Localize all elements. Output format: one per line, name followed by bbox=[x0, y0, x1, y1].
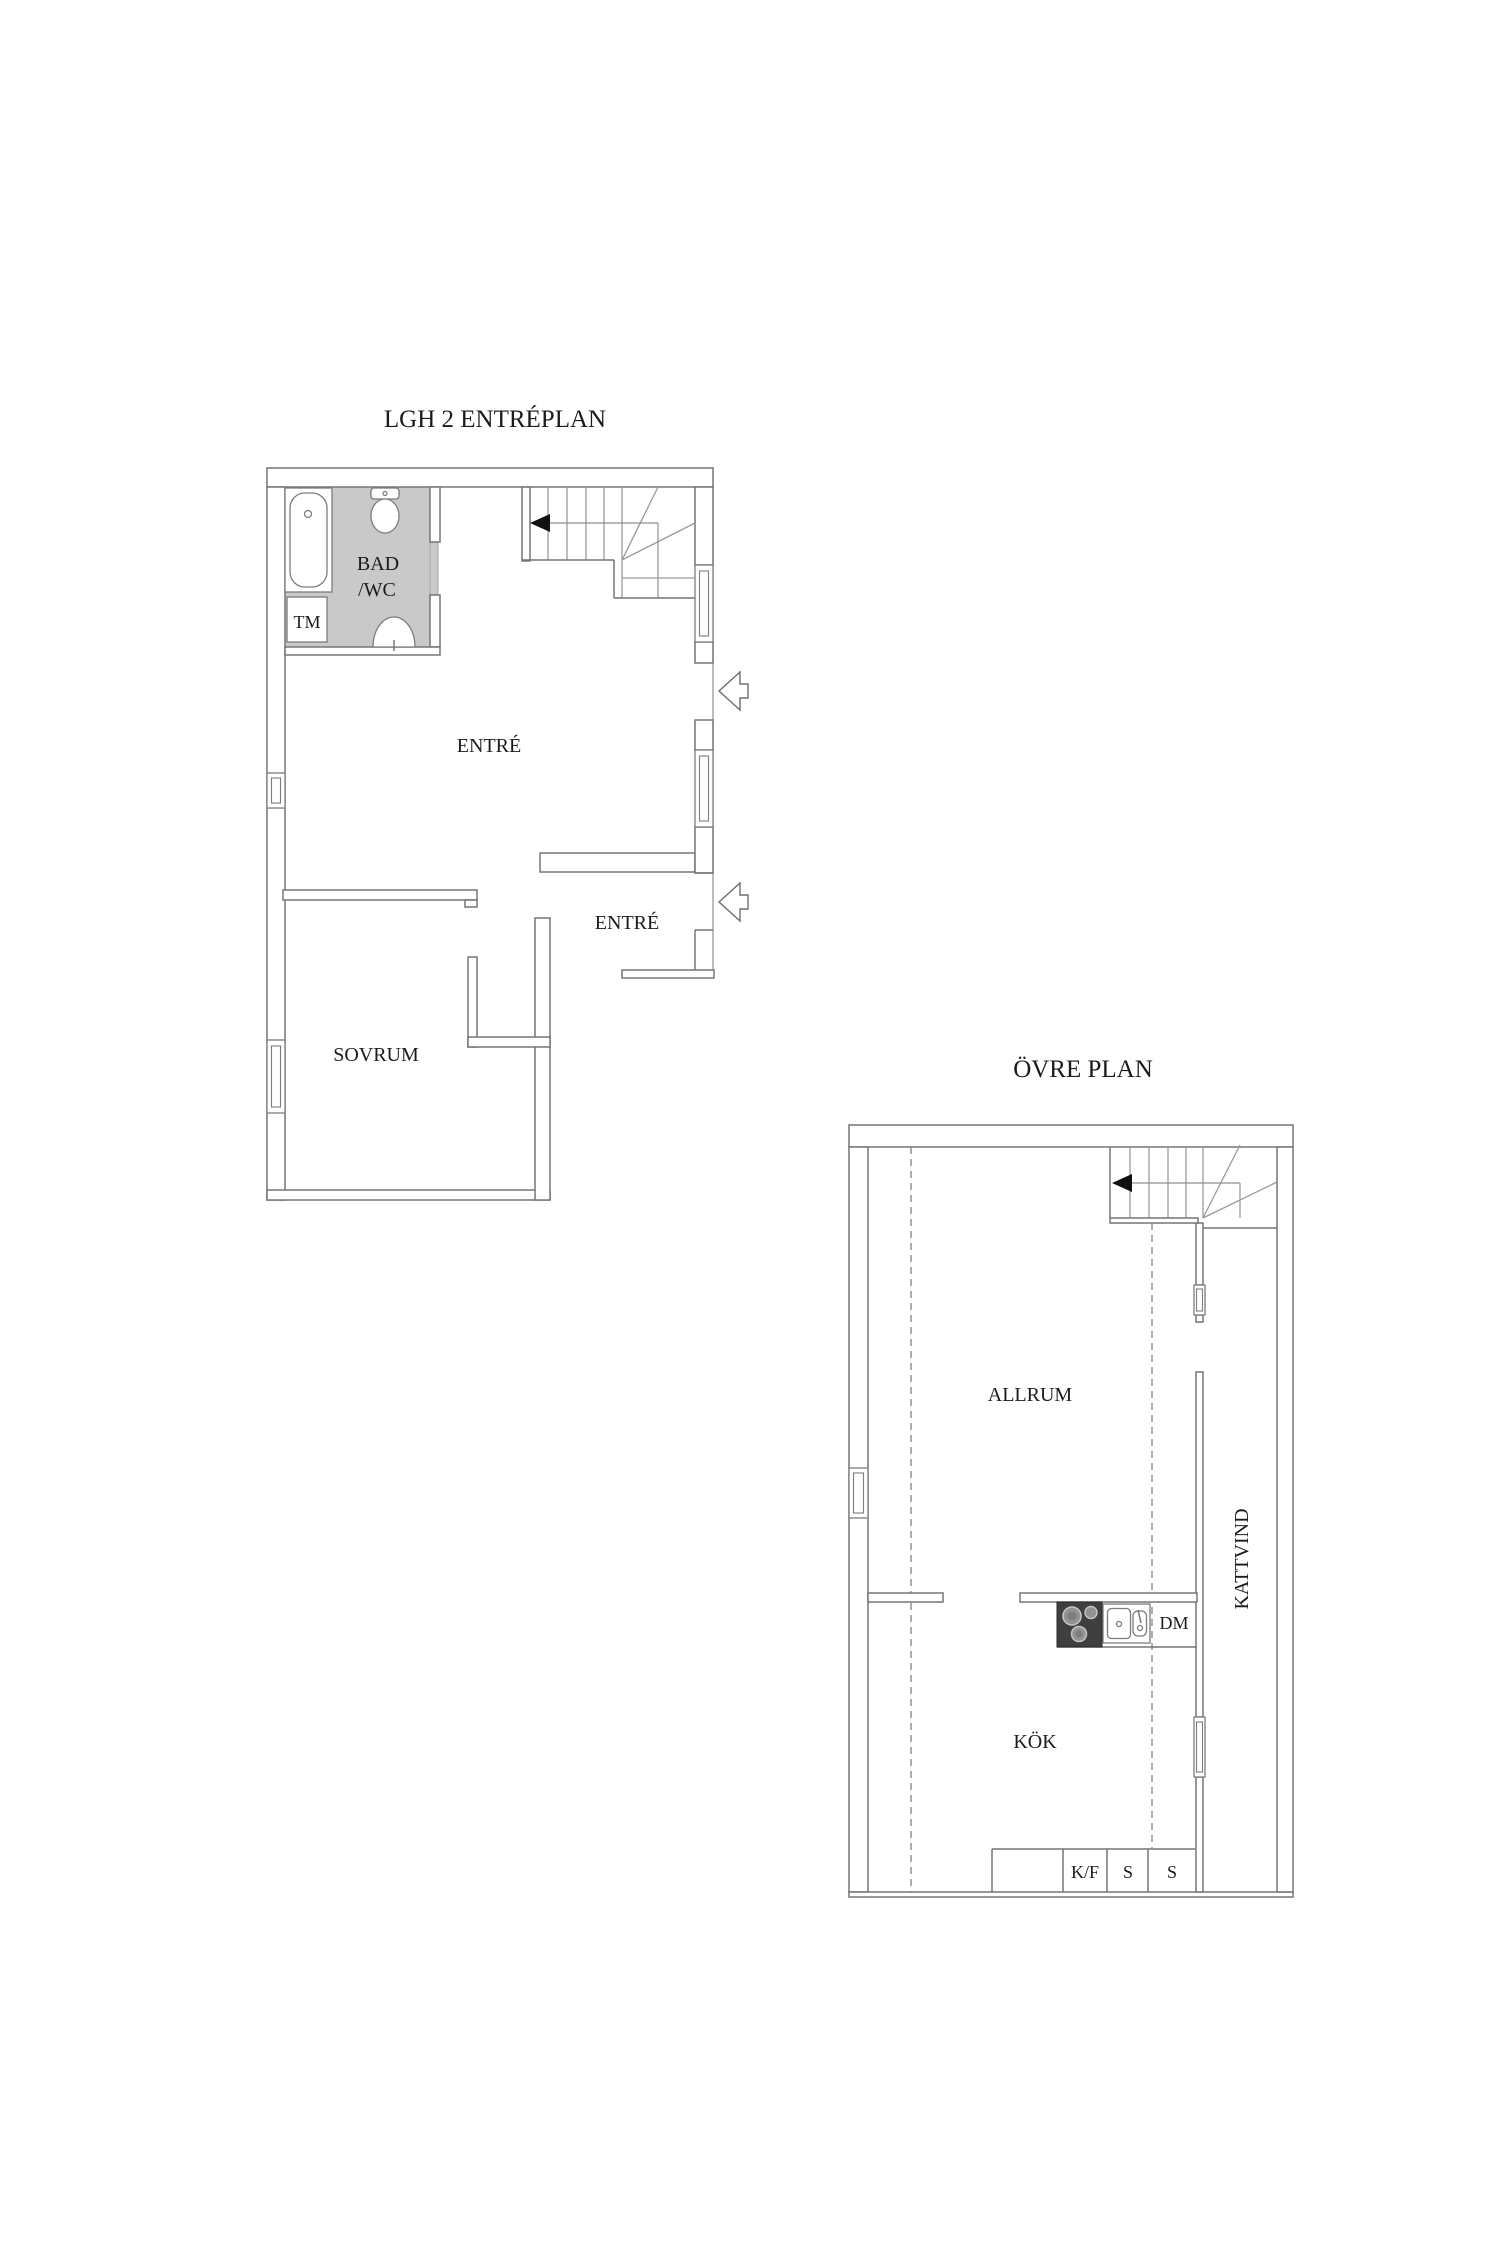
label-s1: S bbox=[1123, 1862, 1133, 1882]
room-label-kattvind: KATTVIND bbox=[1231, 1508, 1253, 1609]
room-label-sovrum: SOVRUM bbox=[333, 1044, 419, 1066]
stove-icon bbox=[1057, 1602, 1102, 1647]
room-label-entre: ENTRÉ bbox=[457, 734, 521, 757]
floor-plan-drawing: LGH 2 ENTRÉPLAN BAD /WC TM ENTRÉ ENTRÉ S… bbox=[0, 0, 1500, 2250]
room-label-kok: KÖK bbox=[1013, 1730, 1057, 1753]
bathtub-icon bbox=[285, 488, 332, 592]
label-kf: K/F bbox=[1071, 1862, 1099, 1882]
label-s2: S bbox=[1167, 1862, 1177, 1882]
floor2-title: ÖVRE PLAN bbox=[1013, 1056, 1153, 1083]
staircase bbox=[1110, 1145, 1277, 1223]
label-dm: DM bbox=[1159, 1613, 1188, 1633]
stair-direction-arrow bbox=[1112, 1174, 1240, 1192]
floor1-title: LGH 2 ENTRÉPLAN bbox=[384, 405, 606, 433]
floor2-plan: ÖVRE PLAN ALLRUM KÖK DM KATTVIND K/F S S bbox=[849, 1056, 1293, 1897]
room-label-allrum: ALLRUM bbox=[988, 1384, 1073, 1406]
entry-door-arrow bbox=[719, 883, 748, 921]
floor-plan-page: LGH 2 ENTRÉPLAN BAD /WC TM ENTRÉ ENTRÉ S… bbox=[0, 0, 1500, 2250]
stair-direction-arrow bbox=[530, 514, 658, 532]
toilet-icon bbox=[371, 488, 399, 533]
staircase bbox=[522, 487, 695, 598]
kitchen-sink-icon bbox=[1103, 1604, 1150, 1643]
floor1-plan: LGH 2 ENTRÉPLAN BAD /WC TM ENTRÉ ENTRÉ S… bbox=[267, 405, 748, 1200]
walls bbox=[849, 1125, 1293, 1897]
room-label-entre2: ENTRÉ bbox=[595, 911, 659, 934]
entry-door-arrow bbox=[719, 672, 748, 710]
room-label-bad: BAD bbox=[357, 553, 399, 575]
label-tm: TM bbox=[294, 612, 321, 632]
ceiling-height-dashed-lines bbox=[911, 1147, 1152, 1892]
room-label-wc: /WC bbox=[358, 579, 396, 601]
